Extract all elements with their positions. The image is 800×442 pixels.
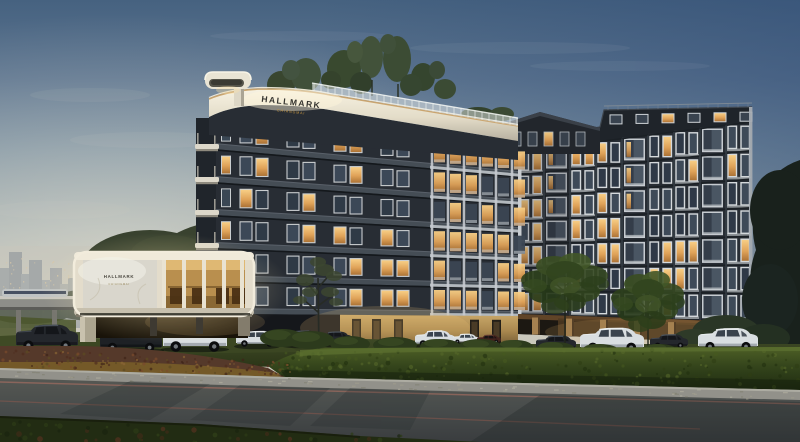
svg-text:HALLMARK: HALLMARK — [104, 274, 135, 279]
svg-text:CHIANGMAI: CHIANGMAI — [108, 282, 129, 286]
